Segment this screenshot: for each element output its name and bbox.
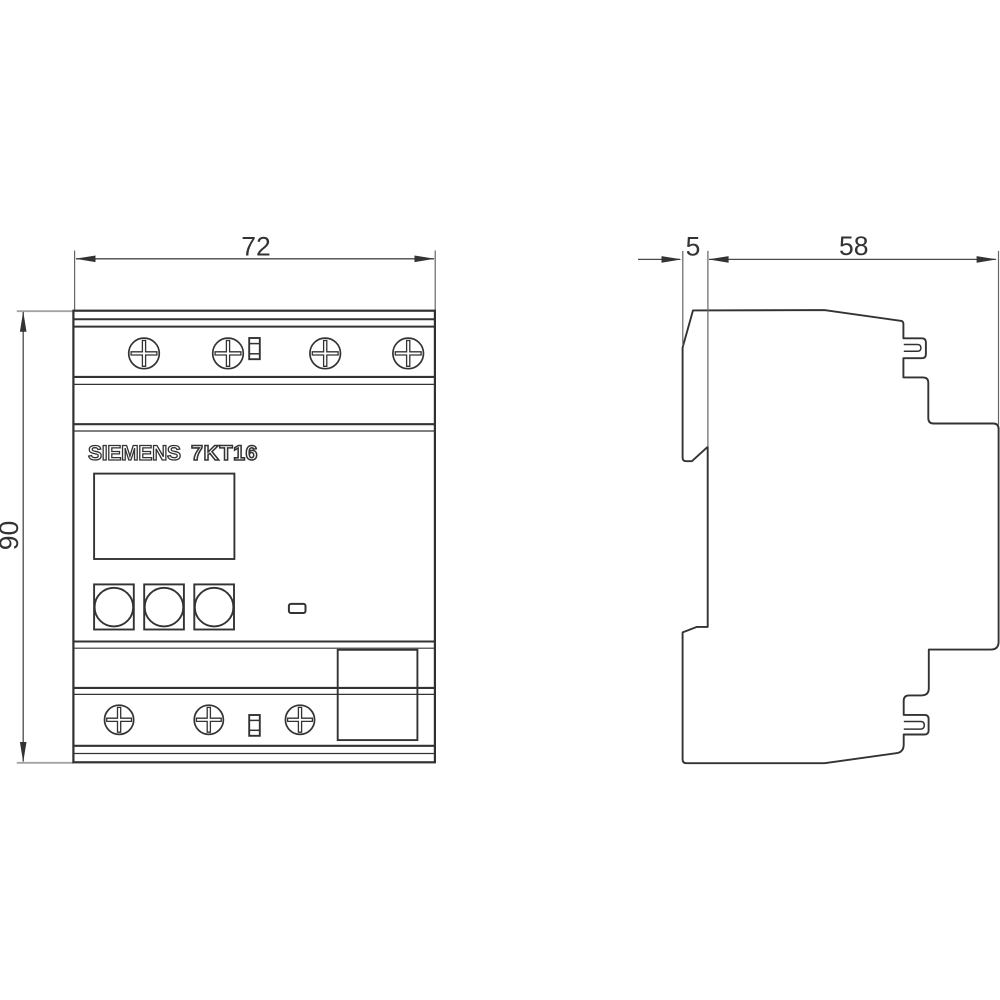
svg-text:SIEMENS: SIEMENS: [88, 442, 182, 465]
svg-text:58: 58: [839, 231, 868, 261]
svg-text:7KT16: 7KT16: [191, 441, 258, 465]
svg-text:72: 72: [241, 232, 270, 262]
svg-text:90: 90: [0, 521, 24, 550]
svg-text:5: 5: [686, 232, 701, 262]
